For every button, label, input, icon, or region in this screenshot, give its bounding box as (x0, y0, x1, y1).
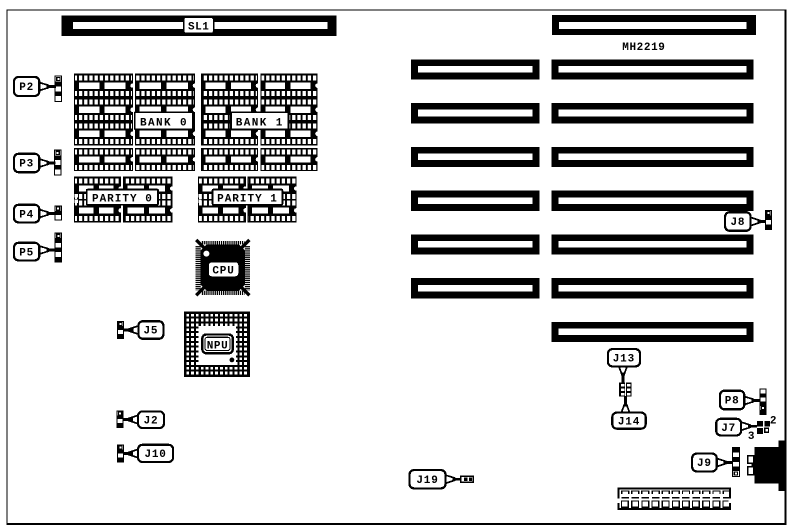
svg-text:J5: J5 (143, 326, 158, 338)
svg-text:2: 2 (770, 416, 777, 428)
svg-text:BANK 1: BANK 1 (236, 117, 284, 129)
svg-text:P8: P8 (725, 396, 740, 408)
svg-text:MH2219: MH2219 (622, 42, 665, 54)
svg-text:CPU: CPU (212, 266, 234, 278)
svg-text:P4: P4 (19, 209, 34, 221)
svg-text:J2: J2 (144, 415, 159, 427)
svg-text:J9: J9 (697, 458, 712, 470)
svg-text:PARITY 1: PARITY 1 (217, 193, 278, 205)
svg-text:P3: P3 (19, 159, 34, 171)
svg-text:NPU: NPU (207, 341, 229, 353)
svg-text:SL1: SL1 (188, 22, 209, 34)
svg-text:J8: J8 (730, 217, 745, 229)
svg-text:J13: J13 (613, 353, 635, 365)
svg-text:J19: J19 (416, 475, 438, 487)
svg-text:J14: J14 (618, 416, 640, 428)
svg-text:3: 3 (748, 431, 755, 443)
svg-text:J7: J7 (721, 423, 736, 435)
svg-text:PARITY 0: PARITY 0 (92, 193, 153, 205)
svg-text:BANK 0: BANK 0 (140, 117, 188, 129)
svg-text:P5: P5 (19, 247, 34, 259)
svg-text:P2: P2 (19, 82, 34, 94)
svg-text:J10: J10 (144, 449, 166, 461)
